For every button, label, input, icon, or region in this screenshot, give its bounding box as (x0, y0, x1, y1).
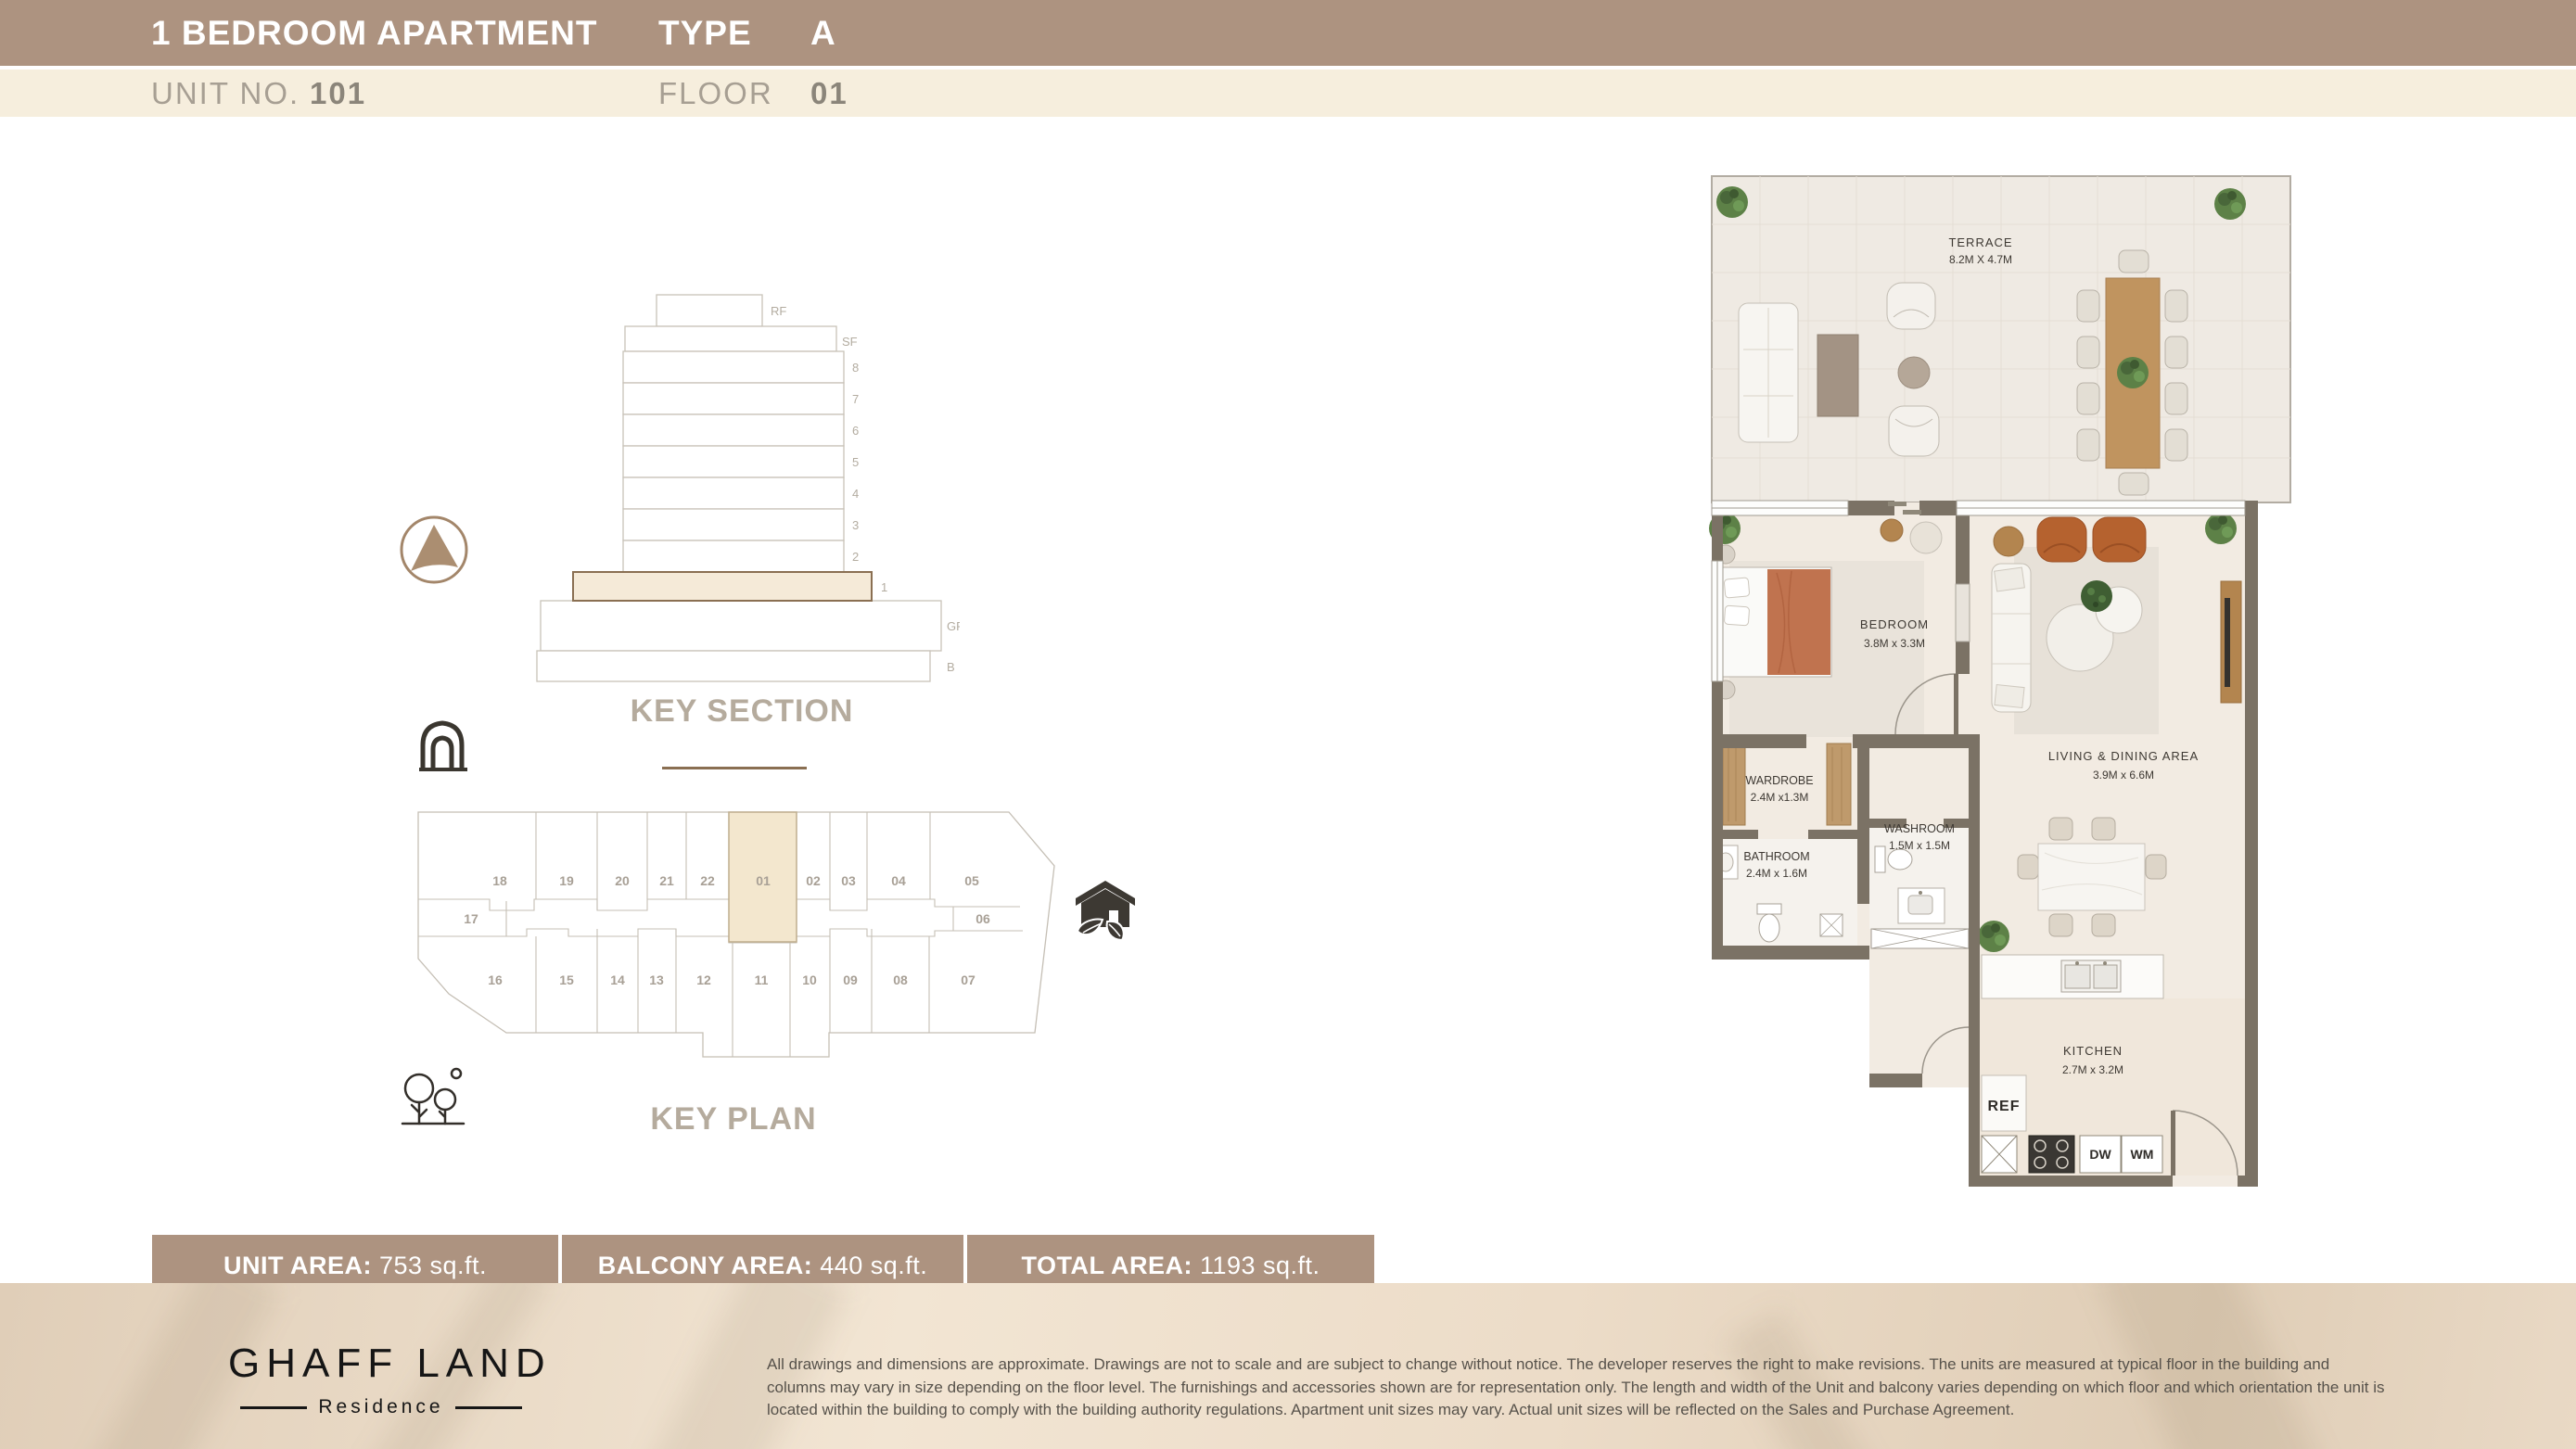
room-dims-terrace: 8.2M X 4.7M (1949, 253, 2012, 266)
house-leaf-icon (1072, 877, 1139, 944)
terrace-side-table (1898, 357, 1930, 388)
plant-icon (2205, 513, 2237, 544)
unit-number: 03 (841, 873, 856, 888)
floor-label-7: 7 (852, 392, 859, 406)
logo-rule-right (455, 1406, 522, 1409)
floor-label: FLOOR (658, 70, 773, 117)
logo-rule-left (240, 1406, 307, 1409)
floor-value: 01 (810, 70, 848, 117)
total-area-label: TOTAL AREA: (1021, 1252, 1192, 1279)
type-label: TYPE (658, 0, 752, 66)
unit-number: 06 (976, 911, 990, 926)
unit-number: 05 (964, 873, 979, 888)
room-label-kitchen: KITCHEN (2063, 1044, 2123, 1058)
tv (2225, 598, 2230, 687)
room-dims-bathroom: 2.4M x 1.6M (1746, 867, 1807, 880)
unit-number: 12 (696, 972, 711, 987)
arch-icon (415, 716, 471, 773)
unit-number: 13 (649, 972, 664, 987)
bedroom-stool (1881, 519, 1903, 541)
unit-number: 16 (488, 972, 503, 987)
unit-number: 02 (806, 873, 821, 888)
room-dims-living: 3.9M x 6.6M (2093, 769, 2154, 782)
bed-blanket (1767, 569, 1830, 675)
unit-number-highlighted: 01 (756, 873, 771, 888)
floor-label-1: 1 (881, 580, 887, 594)
section-divider (662, 767, 807, 769)
living-side-table (1994, 527, 2023, 556)
label-ref: REF (1988, 1099, 2021, 1114)
unit-number: 10 (802, 972, 817, 987)
label-wm: WM (2131, 1147, 2154, 1162)
room-label-living: LIVING & DINING AREA (2048, 749, 2199, 763)
unit-area-value: 753 sq.ft. (379, 1252, 487, 1279)
unit-number: 04 (891, 873, 906, 888)
floor-label-5: 5 (852, 455, 859, 469)
compass-icon (397, 513, 471, 587)
room-dims-bedroom: 3.8M x 3.3M (1864, 637, 1925, 650)
unit-number: 22 (700, 873, 715, 888)
terrace-coffee-table (1817, 335, 1858, 416)
plant-icon (2214, 188, 2246, 220)
unit-number: 19 (559, 873, 574, 888)
subheader-bar: UNIT NO. 101 FLOOR 01 (0, 70, 2576, 117)
living-armchair (2037, 517, 2086, 562)
floor-label-8: 8 (852, 361, 859, 375)
unit-number: 08 (893, 972, 908, 987)
bedroom-pouf (1910, 522, 1942, 553)
room-dims-washroom: 1.5M x 1.5M (1889, 839, 1950, 852)
toilet (1759, 914, 1779, 942)
highlighted-floor-block (573, 572, 872, 601)
unit-no-value: 101 (310, 70, 366, 117)
floor-label-b: B (947, 660, 955, 674)
key-plan-title: KEY PLAN (548, 1101, 919, 1138)
unit-number: 20 (615, 873, 630, 888)
room-dims-wardrobe: 2.4M x1.3M (1751, 791, 1809, 804)
plant-icon (2117, 357, 2149, 388)
room-label-terrace: TERRACE (1948, 235, 2012, 249)
brand-logo: GHAFF LAND Residence (228, 1341, 534, 1418)
room-label-bathroom: BATHROOM (1743, 850, 1809, 863)
unit-no-label: UNIT NO. (151, 70, 300, 117)
tv-console (2221, 581, 2241, 703)
key-section-diagram: RF SF 8 7 6 5 4 3 2 1 GF B (533, 289, 960, 683)
unit-number: 07 (961, 972, 976, 987)
floor-label-2: 2 (852, 550, 859, 564)
type-value: A (810, 0, 836, 66)
living-armchair (2093, 517, 2146, 562)
unit-number: 21 (659, 873, 674, 888)
total-area-value: 1193 sq.ft. (1200, 1252, 1320, 1279)
stove (2029, 1136, 2074, 1173)
terrace-armchair (1887, 283, 1935, 329)
plant-icon (1978, 921, 2009, 952)
room-label-bedroom: BEDROOM (1860, 617, 1929, 631)
wardrobe-unit (1723, 744, 1745, 825)
key-section-title: KEY SECTION (556, 693, 927, 730)
unit-area-label: UNIT AREA: (223, 1252, 372, 1279)
balcony-area-label: BALCONY AREA: (598, 1252, 813, 1279)
floor-plan: TERRACE 8.2M X 4.7M BEDROOM 3.8M x 3.3M … (1697, 167, 2300, 1210)
header-bar: 1 BEDROOM APARTMENT TYPE A (0, 0, 2576, 66)
unit-number: 11 (755, 972, 769, 987)
plant-icon (1716, 186, 1748, 218)
table-plant (2081, 580, 2112, 612)
floor-label-gf: GF (947, 619, 960, 633)
label-dw: DW (2089, 1147, 2111, 1162)
key-plan-diagram: 18 19 20 21 22 01 02 03 04 05 17 06 16 1… (415, 799, 1057, 1068)
balcony-area-value: 440 sq.ft. (820, 1252, 927, 1279)
trees-icon (399, 1064, 475, 1133)
room-label-washroom: WASHROOM (1884, 822, 1955, 835)
brand-name: GHAFF LAND (228, 1341, 534, 1387)
wall-niche (1956, 584, 1970, 642)
terrace-armchair (1889, 406, 1939, 456)
brand-subtitle: Residence (318, 1396, 443, 1418)
unit-number: 15 (559, 972, 574, 987)
room-dims-kitchen: 2.7M x 3.2M (2062, 1063, 2123, 1076)
disclaimer-text: All drawings and dimensions are approxim… (767, 1354, 2390, 1422)
floor-label-3: 3 (852, 518, 859, 532)
page-title: 1 BEDROOM APARTMENT (151, 0, 598, 66)
unit-number: 18 (492, 873, 507, 888)
floor-label-rf: RF (771, 304, 786, 318)
wardrobe-unit (1827, 744, 1851, 825)
floor-label-sf: SF (842, 335, 858, 349)
unit-number: 09 (843, 972, 858, 987)
unit-number: 14 (610, 972, 625, 987)
toilet (1888, 849, 1912, 870)
floor-label-6: 6 (852, 424, 859, 438)
unit-number: 17 (464, 911, 478, 926)
floor-label-4: 4 (852, 487, 859, 501)
room-label-wardrobe: WARDROBE (1745, 774, 1813, 787)
